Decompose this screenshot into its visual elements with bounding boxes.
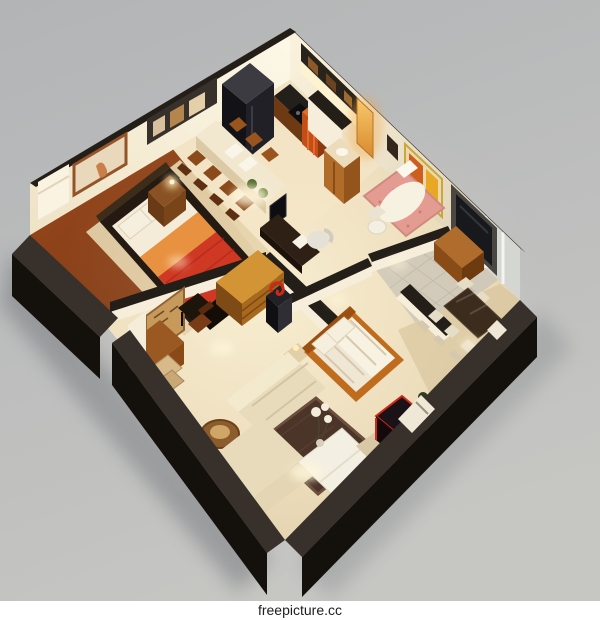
floor-plan-render: freepicture.cc [0, 0, 600, 620]
floor-plan-canvas: freepicture.cc [0, 0, 600, 620]
watermark-bar: freepicture.cc [0, 601, 600, 620]
table-lamp [170, 180, 175, 185]
watermark-text: freepicture.cc [258, 602, 342, 618]
sink [336, 148, 348, 156]
office-chair [307, 231, 329, 249]
bedside-lamp [293, 345, 299, 351]
toilet [368, 220, 386, 234]
